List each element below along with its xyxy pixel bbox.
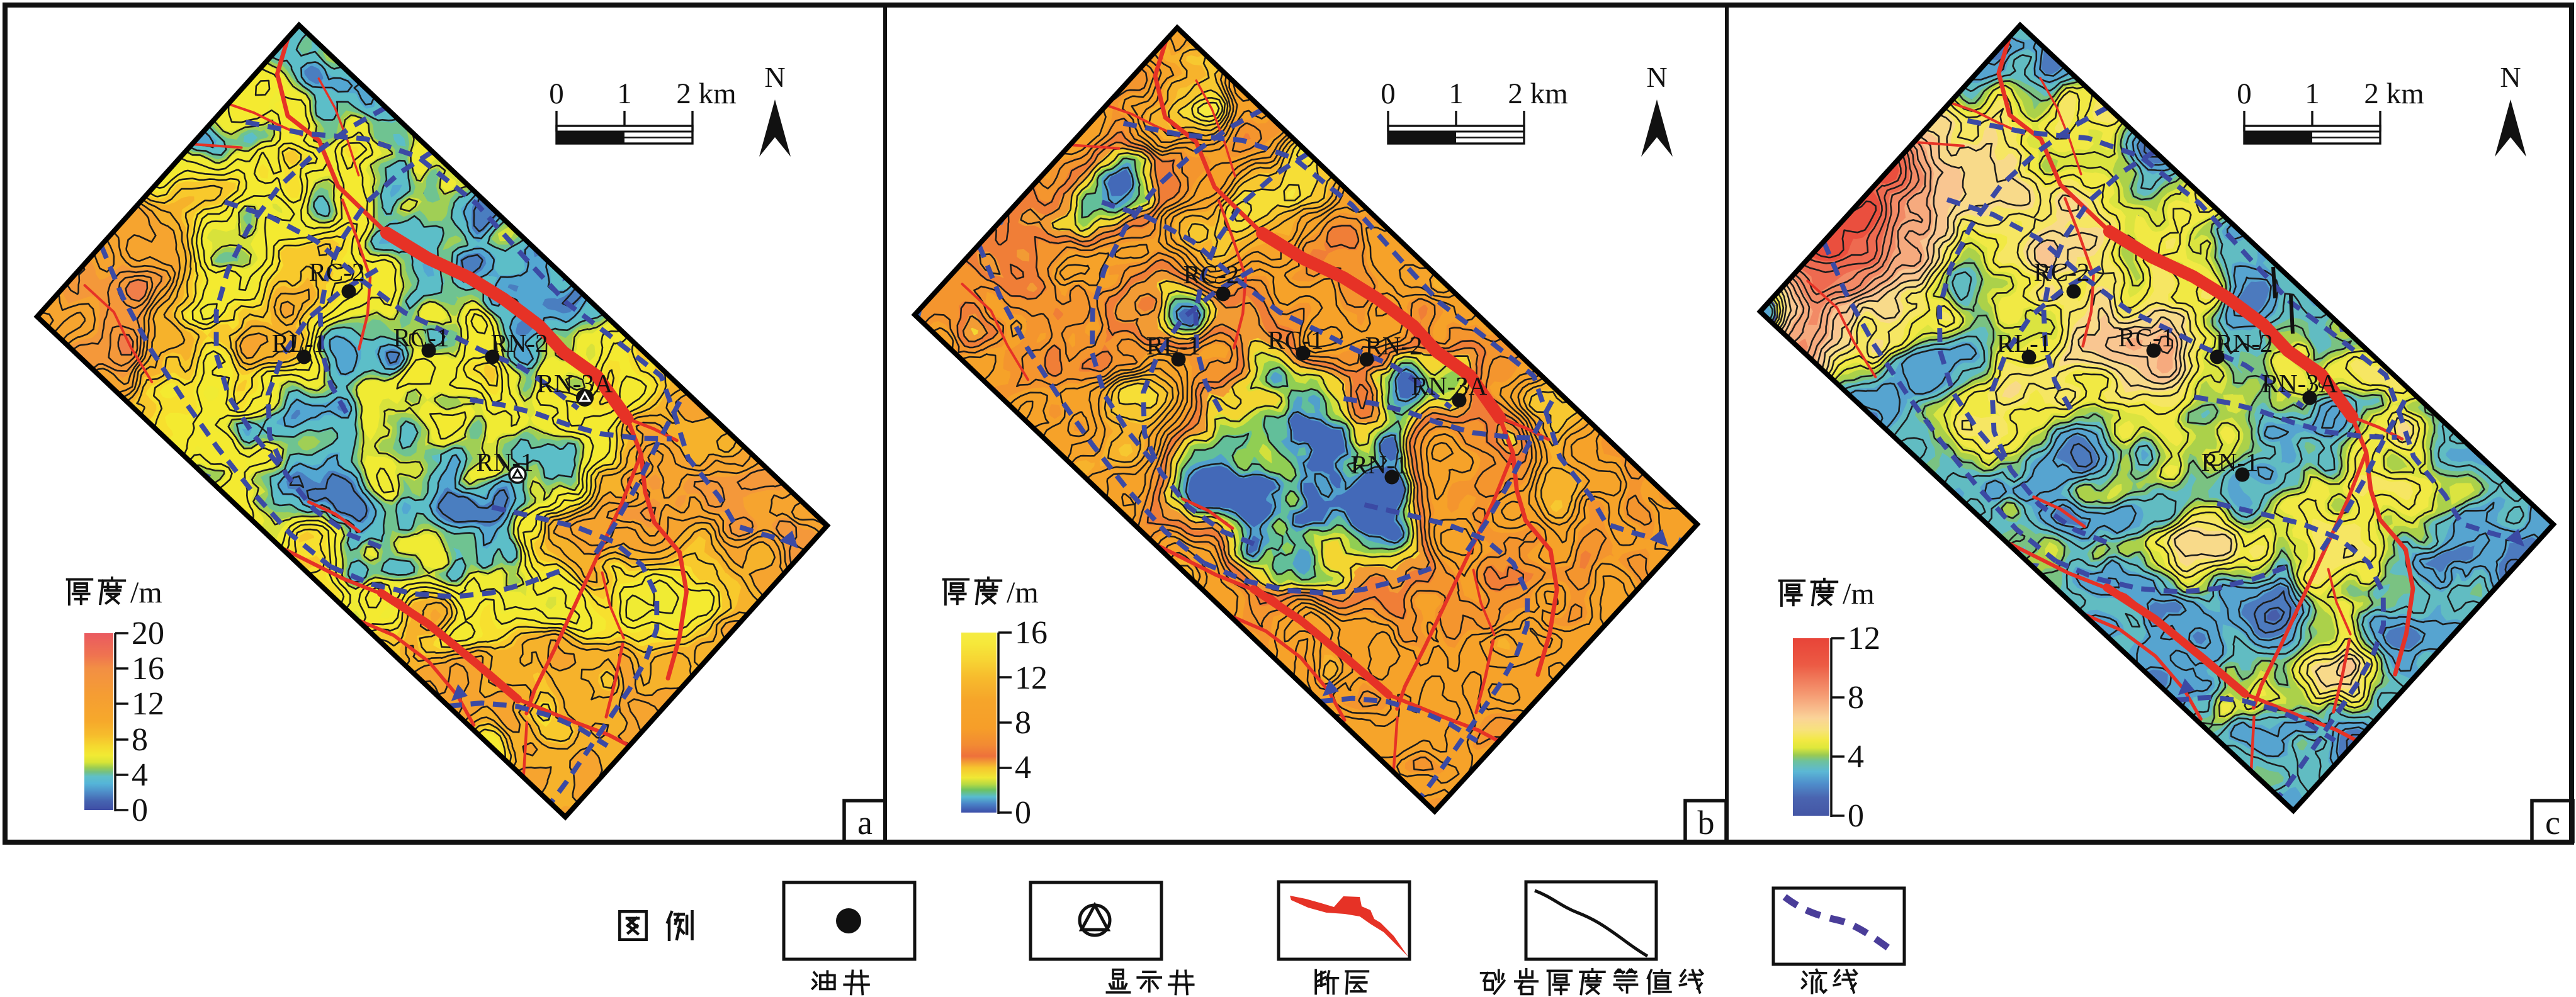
svg-text:16: 16	[1015, 615, 1048, 651]
svg-text:RC-2: RC-2	[309, 257, 365, 286]
svg-text:0: 0	[132, 792, 148, 828]
svg-text:/m: /m	[1843, 577, 1875, 611]
svg-text:1: 1	[1449, 77, 1464, 110]
svg-text:4: 4	[1848, 739, 1864, 775]
svg-text:RN-2: RN-2	[490, 329, 548, 358]
svg-text:2 km: 2 km	[1508, 77, 1568, 110]
svg-text:/m: /m	[1007, 576, 1039, 609]
svg-text:8: 8	[1848, 680, 1864, 716]
svg-text:0: 0	[1381, 77, 1396, 110]
svg-text:c: c	[2545, 804, 2560, 842]
svg-text:RC-1: RC-1	[2118, 323, 2174, 352]
svg-text:0: 0	[1015, 795, 1031, 831]
svg-text:1: 1	[617, 77, 632, 110]
svg-text:RC-1: RC-1	[1268, 325, 1324, 354]
svg-text:N: N	[764, 61, 785, 93]
svg-text:RN-3A: RN-3A	[537, 369, 613, 398]
svg-text:0: 0	[2237, 77, 2252, 110]
svg-text:12: 12	[1848, 621, 1880, 656]
svg-text:RC-1: RC-1	[393, 323, 449, 352]
svg-text:8: 8	[1015, 705, 1031, 741]
svg-text:N: N	[2500, 61, 2521, 93]
svg-text:RN-1: RN-1	[1350, 450, 1408, 479]
svg-text:RN-3A: RN-3A	[1411, 371, 1488, 400]
svg-text:RC-2: RC-2	[2034, 257, 2090, 286]
svg-text:a: a	[857, 804, 873, 842]
svg-text:16: 16	[132, 651, 164, 687]
svg-text:2 km: 2 km	[2364, 77, 2424, 110]
svg-text:8: 8	[132, 722, 148, 758]
svg-text:0: 0	[1848, 798, 1864, 834]
svg-text:12: 12	[132, 686, 164, 722]
svg-text:N: N	[1646, 61, 1667, 93]
svg-text:b: b	[1698, 804, 1715, 842]
svg-text:0: 0	[549, 77, 564, 110]
svg-text:RC-2: RC-2	[1183, 260, 1240, 289]
svg-text:RN-2: RN-2	[1365, 331, 1422, 360]
svg-text:4: 4	[1015, 750, 1031, 786]
svg-text:/m: /m	[130, 576, 162, 609]
svg-text:20: 20	[132, 616, 164, 651]
svg-text:RN-2: RN-2	[2215, 329, 2273, 358]
svg-text:2 km: 2 km	[676, 77, 736, 110]
svg-text:RN-1: RN-1	[2201, 448, 2258, 476]
svg-text:1: 1	[2305, 77, 2320, 110]
svg-text:RN-3A: RN-3A	[2262, 369, 2338, 398]
svg-text:12: 12	[1015, 660, 1048, 696]
svg-text:4: 4	[132, 757, 148, 793]
